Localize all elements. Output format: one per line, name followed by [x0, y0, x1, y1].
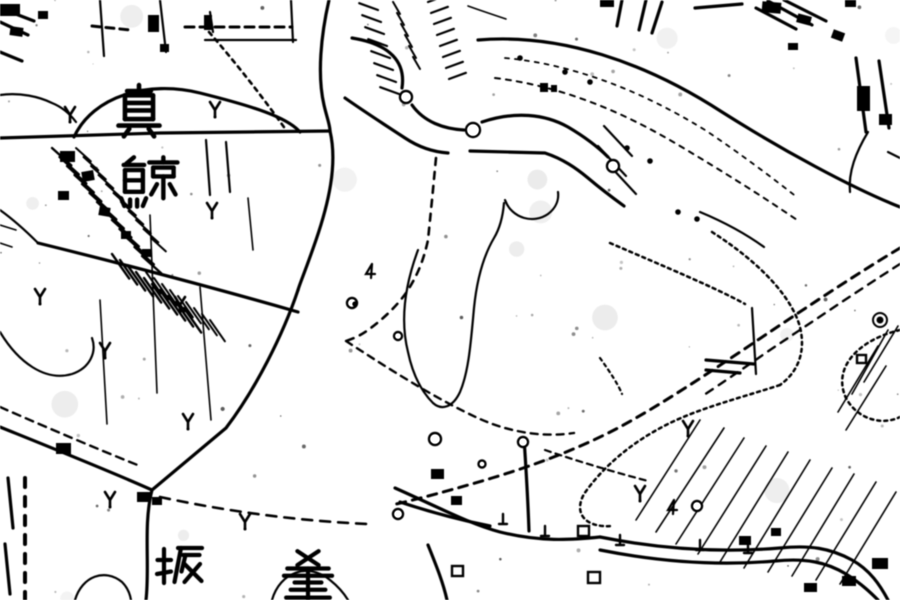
building-mark	[842, 576, 856, 586]
circle-marker-symbol	[393, 509, 403, 519]
dot-marker	[352, 301, 358, 307]
circle-marker-symbol	[607, 160, 619, 172]
mulberry-field-symbol	[65, 107, 75, 124]
square-marker-symbol	[452, 566, 463, 576]
square-marker-symbol	[578, 526, 589, 536]
circle-marker-symbol	[466, 123, 480, 137]
mulberry-field-symbol	[207, 203, 217, 220]
kanji-label	[157, 548, 202, 583]
kanji-label	[284, 551, 332, 599]
mulberry-field-symbol	[35, 289, 45, 306]
building-mark	[540, 83, 548, 92]
building-mark	[762, 1, 782, 14]
building-mark	[142, 249, 151, 257]
building-mark	[831, 29, 845, 42]
building-mark	[121, 231, 131, 239]
building-mark	[152, 497, 162, 505]
map-viewport	[0, 0, 900, 600]
building-mark	[137, 492, 151, 502]
building-mark	[160, 44, 169, 52]
mulberry-field-symbol	[100, 343, 110, 360]
building-mark	[38, 11, 48, 19]
building-mark	[56, 443, 71, 454]
building-mark	[845, 0, 856, 7]
circle-marker-symbol	[692, 501, 702, 511]
building-mark	[739, 536, 751, 545]
dot-marker	[517, 55, 523, 61]
dot-marker	[694, 216, 700, 222]
building-mark	[788, 43, 798, 50]
building-mark	[872, 558, 888, 569]
building-mark	[796, 13, 812, 25]
dot-marker	[647, 158, 653, 164]
building-mark	[81, 170, 95, 182]
dot-marker	[587, 79, 593, 85]
circle-marker-symbol	[429, 433, 441, 445]
building-mark	[431, 469, 444, 479]
numeral-like-symbol	[366, 264, 375, 278]
building-mark	[9, 26, 23, 37]
kanji-label	[118, 85, 159, 136]
circle-marker-symbol	[479, 461, 486, 468]
square-marker-symbol	[857, 355, 866, 363]
noise-blotches	[26, 5, 900, 600]
mulberry-field-symbol	[210, 102, 220, 119]
building-mark	[204, 15, 212, 30]
circle-marker-symbol	[518, 437, 528, 447]
mulberry-field-symbol	[635, 486, 645, 503]
building-mark	[98, 206, 110, 217]
scanned-map-image	[0, 0, 900, 600]
dot-marker	[624, 145, 630, 151]
mulberry-field-symbol	[183, 414, 193, 431]
road-tick-mark	[541, 526, 549, 536]
kanji-label	[121, 157, 177, 206]
mulberry-field-symbol	[683, 421, 693, 438]
dot-marker	[675, 209, 681, 215]
building-mark	[0, 4, 20, 16]
building-mark	[600, 0, 614, 7]
circle-marker-symbol	[400, 91, 412, 103]
road-tick-mark	[499, 514, 507, 524]
building-mark	[451, 496, 462, 505]
mulberry-field-symbol	[105, 492, 115, 509]
hatching-cliff-marks	[52, 0, 466, 341]
building-mark	[857, 86, 870, 111]
dot-marker	[562, 69, 568, 75]
mulberry-field-symbol	[240, 514, 250, 531]
building-mark	[60, 151, 75, 162]
circle-marker-symbol	[394, 332, 402, 340]
building-mark	[771, 528, 781, 536]
building-mark	[148, 15, 159, 32]
building-mark	[804, 583, 817, 592]
building-mark	[879, 114, 892, 125]
building-mark	[58, 191, 69, 200]
square-marker-symbol	[588, 572, 600, 583]
building-mark	[551, 85, 557, 92]
